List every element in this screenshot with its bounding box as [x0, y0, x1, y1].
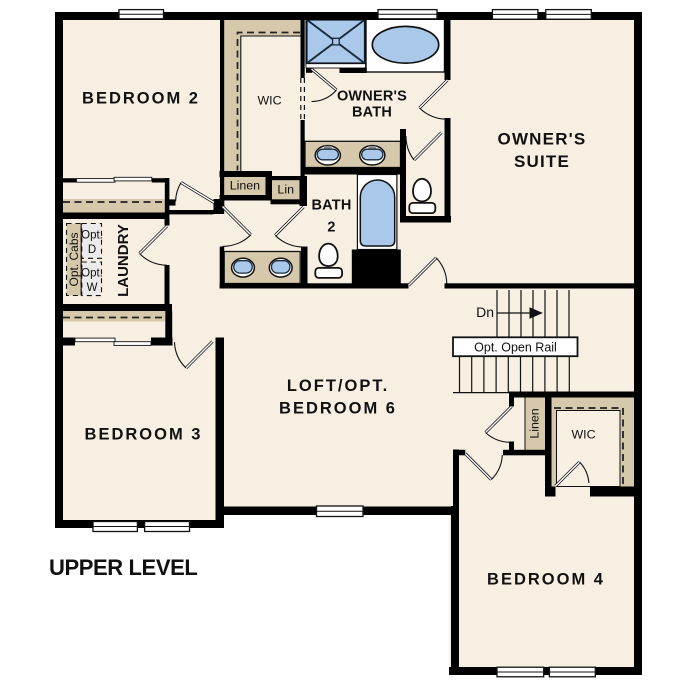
svg-text:BEDROOM 3: BEDROOM 3 — [85, 426, 203, 444]
svg-text:WIC: WIC — [257, 94, 281, 108]
svg-text:Opt. Cabs: Opt. Cabs — [67, 232, 81, 286]
svg-text:Linen: Linen — [527, 408, 541, 438]
svg-text:BEDROOM 6: BEDROOM 6 — [279, 400, 397, 418]
svg-text:W: W — [87, 282, 98, 294]
svg-text:BATH: BATH — [352, 105, 392, 121]
svg-text:2: 2 — [327, 220, 335, 236]
svg-text:UPPER LEVEL: UPPER LEVEL — [49, 555, 197, 580]
svg-text:Opt. Open Rail: Opt. Open Rail — [474, 341, 557, 355]
svg-text:OWNER'S: OWNER'S — [337, 89, 407, 105]
svg-text:BEDROOM 4: BEDROOM 4 — [487, 571, 605, 589]
svg-text:D: D — [88, 244, 96, 256]
svg-text:Opt.: Opt. — [81, 268, 103, 280]
svg-text:SUITE: SUITE — [514, 152, 570, 171]
svg-text:Lin: Lin — [277, 183, 294, 197]
svg-text:BATH: BATH — [312, 198, 352, 214]
svg-text:Dn: Dn — [476, 304, 494, 320]
svg-text:BEDROOM 2: BEDROOM 2 — [82, 90, 200, 108]
svg-text:WIC: WIC — [571, 428, 595, 442]
svg-text:LAUNDRY: LAUNDRY — [115, 224, 132, 297]
svg-text:OWNER'S: OWNER'S — [498, 130, 587, 149]
svg-text:LOFT/OPT.: LOFT/OPT. — [287, 377, 389, 395]
svg-text:Opt.: Opt. — [81, 230, 103, 242]
svg-text:Linen: Linen — [230, 179, 260, 193]
